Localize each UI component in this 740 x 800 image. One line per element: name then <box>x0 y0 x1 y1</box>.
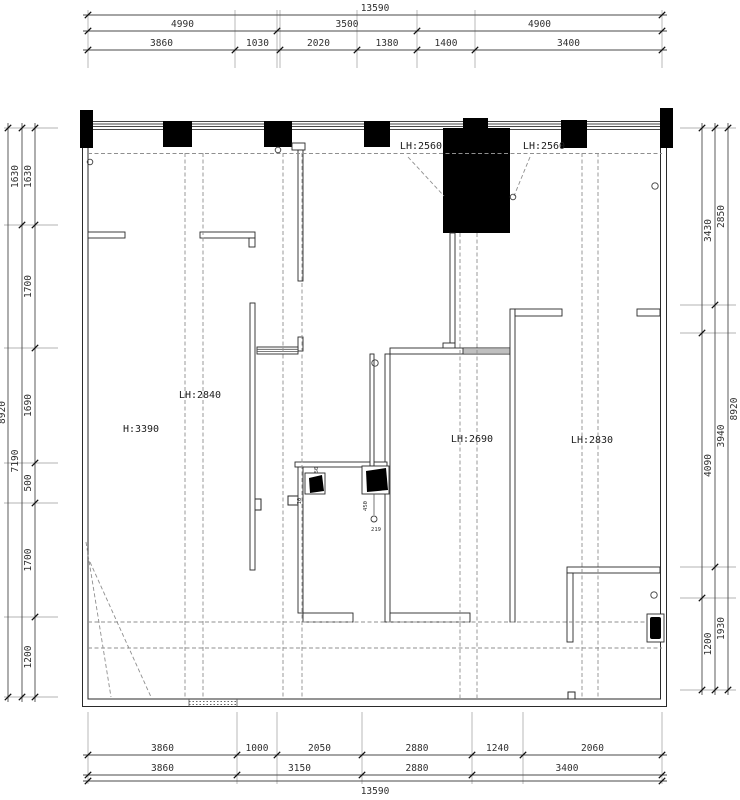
dimension-label: 4900 <box>528 19 551 30</box>
column <box>163 121 192 147</box>
dimension-label: 1000 <box>246 743 269 754</box>
room-height-labels: LH:2560LH:2560LH:2840H:3390LH:2690LH:283… <box>123 141 613 446</box>
urinal-icon <box>647 614 664 642</box>
dimension-label: 1630 <box>10 165 21 188</box>
symbol-circle <box>652 183 658 189</box>
room-label: LH:2690 <box>451 434 493 445</box>
wall-notch <box>255 499 261 510</box>
room-label: LH:2840 <box>179 390 221 401</box>
dimension-label: 4990 <box>171 19 194 30</box>
dimension-label: 2060 <box>581 743 604 754</box>
room-label: LH:2830 <box>571 435 613 446</box>
dimension-label: 1400 <box>435 38 458 49</box>
dimension-label: 2850 <box>716 205 727 228</box>
floor-plan-canvas: 1359049903500490038601030202013801400340… <box>0 0 740 800</box>
dimension-label: 8920 <box>729 397 740 420</box>
dimension-label: 3940 <box>716 424 727 447</box>
dimension-label: 3400 <box>557 38 580 49</box>
dimension-label: 2880 <box>406 763 429 774</box>
dimension-label: 13590 <box>361 3 390 14</box>
dimension-label: 2880 <box>406 743 429 754</box>
fixtures <box>305 466 664 642</box>
callout-label: 10 <box>297 498 303 505</box>
ramp-line <box>90 562 151 697</box>
dimension-label: 1200 <box>23 645 34 668</box>
dimension-label: 13590 <box>361 786 390 797</box>
dimension-label: 7190 <box>10 449 21 472</box>
dimension-label: 1240 <box>486 743 509 754</box>
room-label: H:3390 <box>123 424 159 435</box>
dimension-label: 1030 <box>246 38 269 49</box>
basin-icon <box>305 473 325 494</box>
dimension-label: 2020 <box>307 38 330 49</box>
dimension-label: 4090 <box>703 454 714 477</box>
column <box>80 110 93 148</box>
leader-line <box>408 157 444 196</box>
room-label: LH:2560 <box>523 141 565 152</box>
symbol-circle <box>275 147 281 153</box>
callout-label: 450 <box>363 501 369 511</box>
threshold-dotted-band <box>189 699 237 707</box>
dimension-label: 3860 <box>150 38 173 49</box>
dimension-label: 1700 <box>23 548 34 571</box>
dimension-label: 500 <box>23 474 34 491</box>
callout-label: 219 <box>371 527 381 533</box>
column <box>660 108 673 148</box>
outer-walls <box>83 148 667 707</box>
dimension-label: 8920 <box>0 401 8 424</box>
wall-notch <box>568 692 575 699</box>
ramp-line <box>86 542 111 697</box>
floor-plan-drawing: 1359049903500490038601030202013801400340… <box>0 0 740 800</box>
dimension-label: 1690 <box>23 394 34 417</box>
sliding-partition <box>257 347 298 354</box>
dimension-label: 3150 <box>288 763 311 774</box>
dimension-label: 3400 <box>556 763 579 774</box>
dimension-label: 3860 <box>151 763 174 774</box>
symbol-circle <box>510 194 516 200</box>
columns <box>80 108 673 148</box>
column <box>264 121 292 147</box>
symbol-circle <box>371 516 377 522</box>
dimension-label: 1630 <box>23 165 34 188</box>
service-shaft <box>443 118 510 233</box>
callout-label: 50 <box>314 467 320 474</box>
dimension-label: 3860 <box>151 743 174 754</box>
sliding-partition <box>463 348 510 354</box>
dimension-label: 1700 <box>23 275 34 298</box>
column <box>364 121 390 147</box>
dimension-label: 1380 <box>376 38 399 49</box>
dimension-label: 2050 <box>308 743 331 754</box>
symbol-circle <box>651 592 657 598</box>
dimension-label: 1930 <box>716 617 727 640</box>
dimension-label: 1200 <box>703 632 714 655</box>
dimension-label: 3430 <box>703 219 714 242</box>
leader-line <box>514 157 530 196</box>
dimension-label: 3500 <box>336 19 359 30</box>
room-label: LH:2560 <box>400 141 442 152</box>
